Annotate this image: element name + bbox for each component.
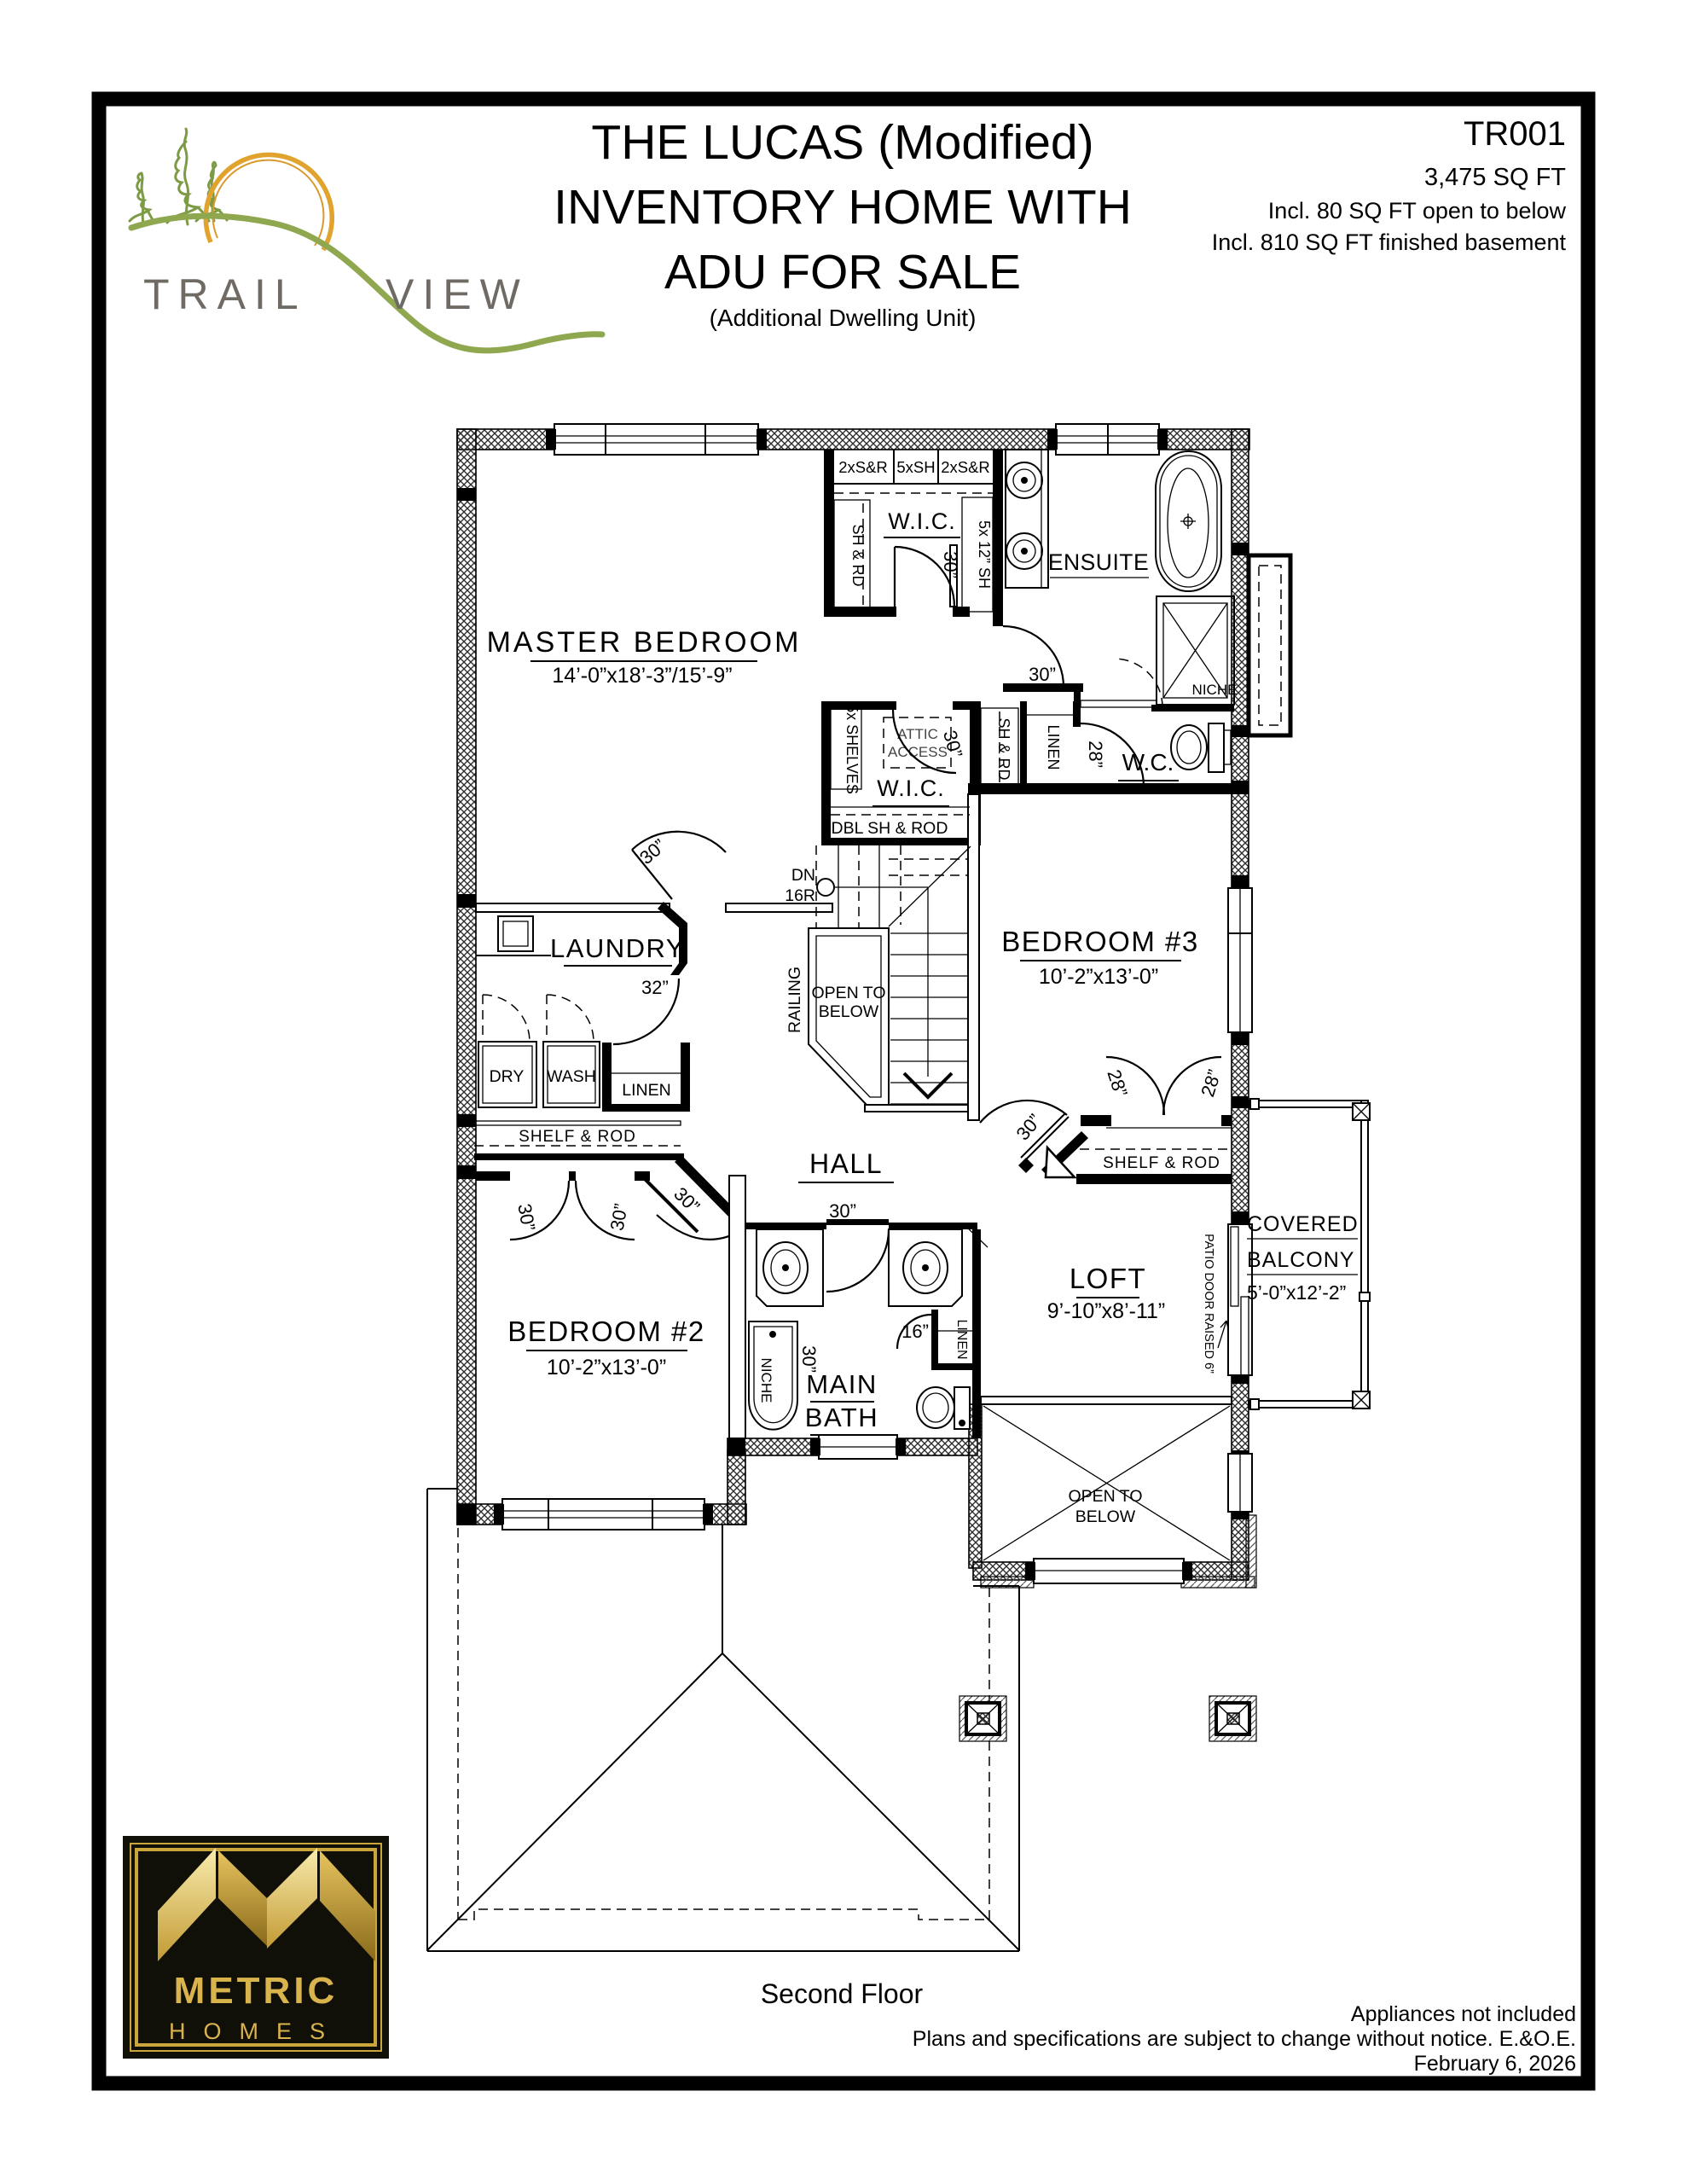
- svg-text:16”: 16”: [901, 1321, 929, 1342]
- svg-text:BATH: BATH: [805, 1403, 878, 1432]
- svg-text:W.I.C.: W.I.C.: [888, 508, 956, 534]
- svg-text:Incl. 80 SQ FT open to below: Incl. 80 SQ FT open to below: [1268, 198, 1567, 224]
- svg-text:OPEN TO: OPEN TO: [811, 984, 885, 1002]
- svg-text:LINEN: LINEN: [622, 1081, 670, 1100]
- svg-text:9’-10”x8’-11”: 9’-10”x8’-11”: [1047, 1299, 1165, 1323]
- svg-text:10’-2”x13’-0”: 10’-2”x13’-0”: [547, 1356, 666, 1380]
- svg-text:(Additional Dwelling Unit): (Additional Dwelling Unit): [710, 305, 977, 331]
- svg-text:SHELF & ROD: SHELF & ROD: [1103, 1154, 1220, 1172]
- svg-text:HOMES: HOMES: [169, 2018, 343, 2044]
- svg-text:SH & RD: SH & RD: [995, 717, 1012, 780]
- svg-text:ATTIC: ATTIC: [897, 726, 938, 742]
- svg-text:BALCONY: BALCONY: [1247, 1248, 1354, 1272]
- svg-text:30”: 30”: [829, 1200, 856, 1222]
- svg-text:WASH: WASH: [547, 1067, 596, 1086]
- svg-text:RAILING: RAILING: [786, 967, 804, 1033]
- svg-text:TR001: TR001: [1464, 115, 1566, 153]
- svg-text:DBL SH & ROD: DBL SH & ROD: [832, 819, 948, 838]
- svg-text:LAUNDRY: LAUNDRY: [550, 933, 685, 963]
- svg-text:LINEN: LINEN: [954, 1319, 969, 1359]
- svg-text:BELOW: BELOW: [819, 1002, 879, 1021]
- svg-text:32”: 32”: [641, 977, 669, 998]
- svg-text:W.I.C.: W.I.C.: [877, 775, 945, 801]
- svg-text:28”: 28”: [1085, 741, 1106, 768]
- svg-text:BELOW: BELOW: [1075, 1507, 1136, 1526]
- svg-text:OPEN TO: OPEN TO: [1068, 1487, 1142, 1506]
- svg-text:SH & RD: SH & RD: [849, 524, 867, 586]
- svg-text:February 6, 2026: February 6, 2026: [1414, 2052, 1576, 2076]
- svg-text:COVERED: COVERED: [1247, 1212, 1359, 1236]
- svg-text:THE LUCAS (Modified): THE LUCAS (Modified): [591, 115, 1093, 170]
- svg-text:3,475 SQ FT: 3,475 SQ FT: [1424, 164, 1566, 191]
- svg-text:Second Floor: Second Floor: [761, 1978, 924, 2009]
- svg-text:VIEW: VIEW: [386, 270, 529, 318]
- svg-text:Incl. 810 SQ FT finished basem: Incl. 810 SQ FT finished basement: [1212, 229, 1567, 255]
- svg-text:5xSH: 5xSH: [896, 458, 935, 476]
- svg-text:MAIN: MAIN: [806, 1369, 878, 1399]
- svg-text:DRY: DRY: [490, 1067, 525, 1086]
- svg-text:ADU FOR SALE: ADU FOR SALE: [664, 245, 1021, 299]
- svg-text:30”: 30”: [1029, 664, 1056, 685]
- svg-text:30”: 30”: [940, 551, 961, 578]
- svg-text:LINEN: LINEN: [1045, 724, 1062, 770]
- svg-text:PATIO DOOR RAISED 6”: PATIO DOOR RAISED 6”: [1202, 1234, 1215, 1374]
- svg-text:LOFT: LOFT: [1070, 1263, 1146, 1294]
- svg-text:Appliances not included: Appliances not included: [1351, 2002, 1576, 2026]
- svg-text:10’-2”x13’-0”: 10’-2”x13’-0”: [1039, 965, 1158, 989]
- svg-text:METRIC: METRIC: [174, 1970, 339, 2012]
- svg-text:BEDROOM #2: BEDROOM #2: [507, 1316, 704, 1347]
- svg-text:5x SHELVES: 5x SHELVES: [843, 704, 861, 794]
- svg-text:Plans and specifications are s: Plans and specifications are subject to …: [913, 2027, 1576, 2051]
- svg-text:INVENTORY HOME WITH: INVENTORY HOME WITH: [554, 180, 1132, 235]
- svg-text:SHELF & ROD: SHELF & ROD: [519, 1128, 636, 1146]
- svg-text:DN: DN: [791, 866, 815, 885]
- svg-text:2xS&R: 2xS&R: [838, 458, 888, 476]
- svg-text:NICHE: NICHE: [1192, 682, 1238, 698]
- svg-text:HALL: HALL: [809, 1148, 883, 1179]
- svg-text:ACCESS: ACCESS: [888, 744, 948, 760]
- svg-text:ENSUITE: ENSUITE: [1048, 549, 1149, 575]
- svg-text:TRAIL: TRAIL: [143, 270, 307, 318]
- svg-text:5’-0”x12’-2”: 5’-0”x12’-2”: [1247, 1281, 1346, 1304]
- svg-text:W.C.: W.C.: [1122, 749, 1174, 775]
- svg-text:14’-0”x18’-3”/15’-9”: 14’-0”x18’-3”/15’-9”: [552, 664, 732, 688]
- svg-text:MASTER BEDROOM: MASTER BEDROOM: [487, 626, 802, 659]
- svg-text:NICHE: NICHE: [758, 1358, 774, 1403]
- svg-text:BEDROOM #3: BEDROOM #3: [1001, 926, 1198, 957]
- svg-text:5x 12” SH: 5x 12” SH: [976, 520, 993, 589]
- svg-text:2xS&R: 2xS&R: [941, 458, 990, 476]
- svg-text:16R: 16R: [785, 886, 815, 905]
